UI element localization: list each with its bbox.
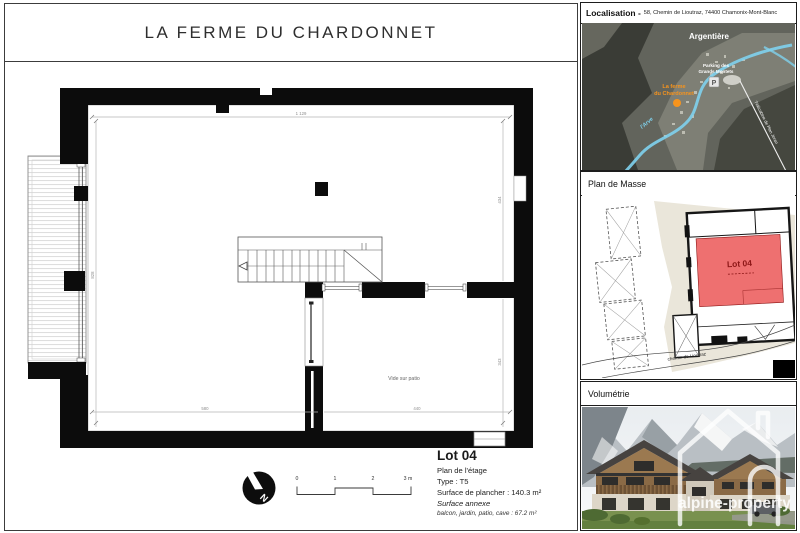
localisation-label: Localisation - bbox=[586, 8, 641, 18]
plan-masse-header: Plan de Masse bbox=[581, 172, 796, 196]
volumetrie-header: Volumétrie bbox=[581, 382, 796, 406]
column bbox=[315, 182, 328, 196]
property-label-line1: La ferme bbox=[662, 84, 685, 90]
town-label: Argentière bbox=[689, 32, 730, 41]
satellite-map: Argentière Parking des Grands Montets P … bbox=[582, 23, 795, 170]
scale-tick-1: 1 bbox=[334, 476, 337, 482]
lot-surface: Surface de plancher : 140.3 m² bbox=[437, 488, 573, 497]
scale-tick-3: 3 m bbox=[404, 476, 413, 482]
main-document: LA FERME DU CHARDONNET bbox=[4, 3, 578, 531]
lot-type: Type : T5 bbox=[437, 477, 573, 486]
page: LA FERME DU CHARDONNET bbox=[0, 0, 800, 533]
render-image: alpine-property bbox=[582, 407, 795, 529]
page-title: LA FERME DU CHARDONNET bbox=[144, 23, 437, 43]
title-band: LA FERME DU CHARDONNET bbox=[5, 4, 577, 62]
localisation-section: Localisation - 58, Chemin de Lioutraz, 7… bbox=[580, 2, 797, 171]
corner-black-block bbox=[773, 360, 795, 378]
stairs bbox=[238, 237, 382, 282]
parking-label-line2: Grands Montets bbox=[699, 69, 734, 74]
dim-bottom-right: 440 bbox=[413, 406, 421, 411]
lot-annex-title: Surface annexe bbox=[437, 499, 573, 508]
satellite-map-svg: Argentière Parking des Grands Montets P … bbox=[582, 23, 795, 170]
scale-tick-0: 0 bbox=[296, 476, 299, 482]
dim-right-upper: 434 bbox=[497, 196, 502, 204]
property-marker-dot bbox=[673, 99, 681, 107]
lot-highlight bbox=[696, 234, 783, 306]
lot-annex-detail: balcon, jardin, patio, cave : 67.2 m² bbox=[437, 510, 573, 517]
main-building: Lot 04 bbox=[684, 208, 795, 345]
dim-bottom-left: 580 bbox=[201, 406, 209, 411]
site-plan-svg: Lot 04 bbox=[582, 195, 795, 378]
parking-label-line1: Parking des bbox=[703, 63, 729, 68]
site-lot-label: Lot 04 bbox=[727, 258, 753, 269]
localisation-header: Localisation - 58, Chemin de Lioutraz, 7… bbox=[581, 3, 796, 24]
svg-text:P: P bbox=[712, 80, 717, 87]
property-label-line2: du Chardonnet bbox=[654, 91, 694, 97]
dim-top: 1 129 bbox=[296, 111, 307, 116]
volumetrie-section: Volumétrie bbox=[580, 381, 797, 531]
scale-tick-2: 2 bbox=[372, 476, 375, 482]
localisation-address: 58, Chemin de Lioutraz, 74400 Chamonix-M… bbox=[644, 10, 777, 16]
scale-bar: 0 1 2 3 m bbox=[296, 476, 413, 495]
dim-left: 828 bbox=[90, 271, 95, 279]
render-svg: alpine-property bbox=[582, 407, 795, 529]
lot-title: Lot 04 bbox=[437, 448, 573, 463]
parking-label: Parking des Grands Montets bbox=[699, 63, 734, 74]
interior-walls bbox=[305, 282, 514, 433]
plan-masse-section: Plan de Masse bbox=[580, 171, 797, 380]
lot-floor: Plan de l'étage bbox=[437, 466, 573, 475]
north-arrow-icon: N bbox=[243, 471, 276, 505]
vide-sur-patio-label: Vide sur patio bbox=[388, 376, 420, 382]
lot-info: Lot 04 Plan de l'étage Type : T5 Surface… bbox=[437, 448, 573, 517]
parking-icon: P bbox=[709, 77, 719, 87]
dim-right-lower: 343 bbox=[497, 358, 502, 366]
site-plan: Lot 04 bbox=[582, 195, 795, 378]
watermark-text: alpine-property bbox=[678, 495, 791, 512]
